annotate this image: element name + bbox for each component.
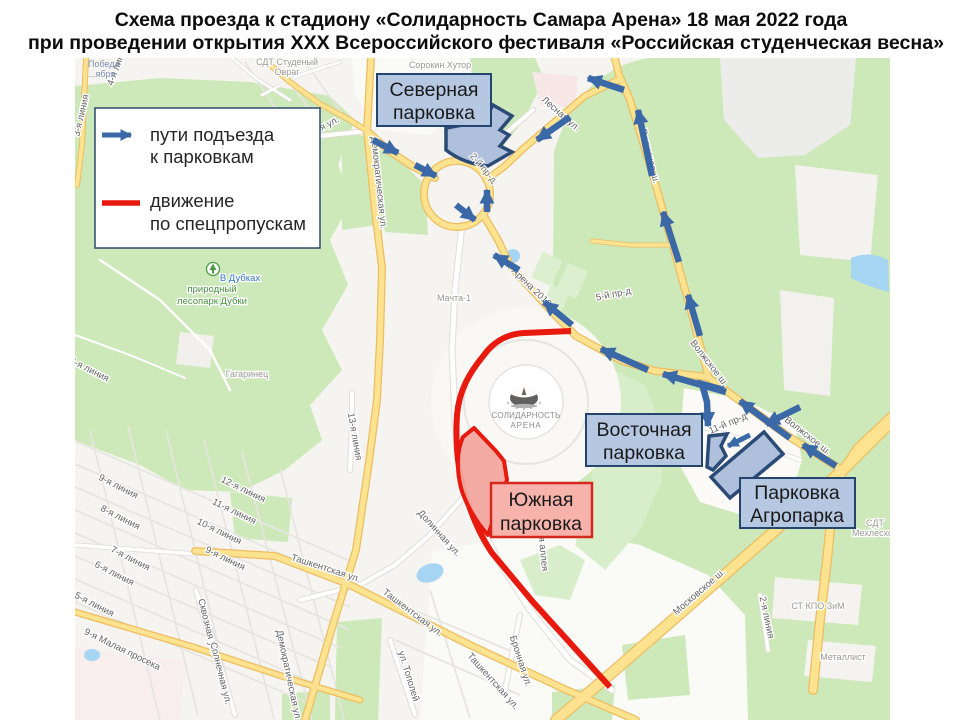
svg-text:СОЛИДАРНОСТЬ: СОЛИДАРНОСТЬ (492, 411, 561, 420)
svg-text:парковка: парковка (500, 513, 582, 535)
svg-text:...ября: ...ября (88, 69, 115, 79)
svg-text:парковка: парковка (393, 102, 475, 124)
svg-text:пути подъезда: пути подъезда (150, 124, 275, 145)
svg-text:Северная: Северная (390, 79, 479, 101)
svg-text:Схема проезда к стадиону «Соли: Схема проезда к стадиону «Солидарность С… (115, 9, 848, 31)
svg-text:В Дубках: В Дубках (220, 273, 261, 284)
svg-text:Победа: Победа (88, 59, 120, 69)
svg-text:СДТ: СДТ (866, 518, 884, 528)
svg-text:Восточная: Восточная (596, 419, 691, 441)
svg-text:Южная: Южная (509, 489, 574, 511)
svg-text:по спецпропускам: по спецпропускам (150, 213, 306, 234)
svg-text:АРЕНА: АРЕНА (510, 421, 541, 430)
svg-text:Гагаринец: Гагаринец (226, 369, 269, 379)
svg-text:лесопарк Дубки: лесопарк Дубки (177, 296, 247, 307)
svg-text:парковка: парковка (603, 442, 685, 464)
svg-text:Металлист: Металлист (820, 652, 865, 662)
svg-text:Мачта-1: Мачта-1 (437, 293, 471, 303)
svg-text:при проведении открытия XXX Вс: при проведении открытия XXX Всероссийско… (28, 32, 944, 54)
svg-text:Парковка: Парковка (754, 482, 840, 504)
svg-text:Овраг: Овраг (274, 67, 300, 77)
svg-text:к парковкам: к парковкам (150, 146, 254, 167)
svg-text:СДТ Студеный: СДТ Студеный (256, 57, 318, 67)
svg-text:Сорокин Хутор: Сорокин Хутор (409, 60, 471, 70)
svg-text:СТ КПО ЗиМ: СТ КПО ЗиМ (791, 601, 844, 611)
svg-text:Агропарка: Агропарка (750, 505, 844, 527)
svg-text:природный: природный (187, 284, 236, 295)
svg-text:движение: движение (150, 190, 234, 211)
